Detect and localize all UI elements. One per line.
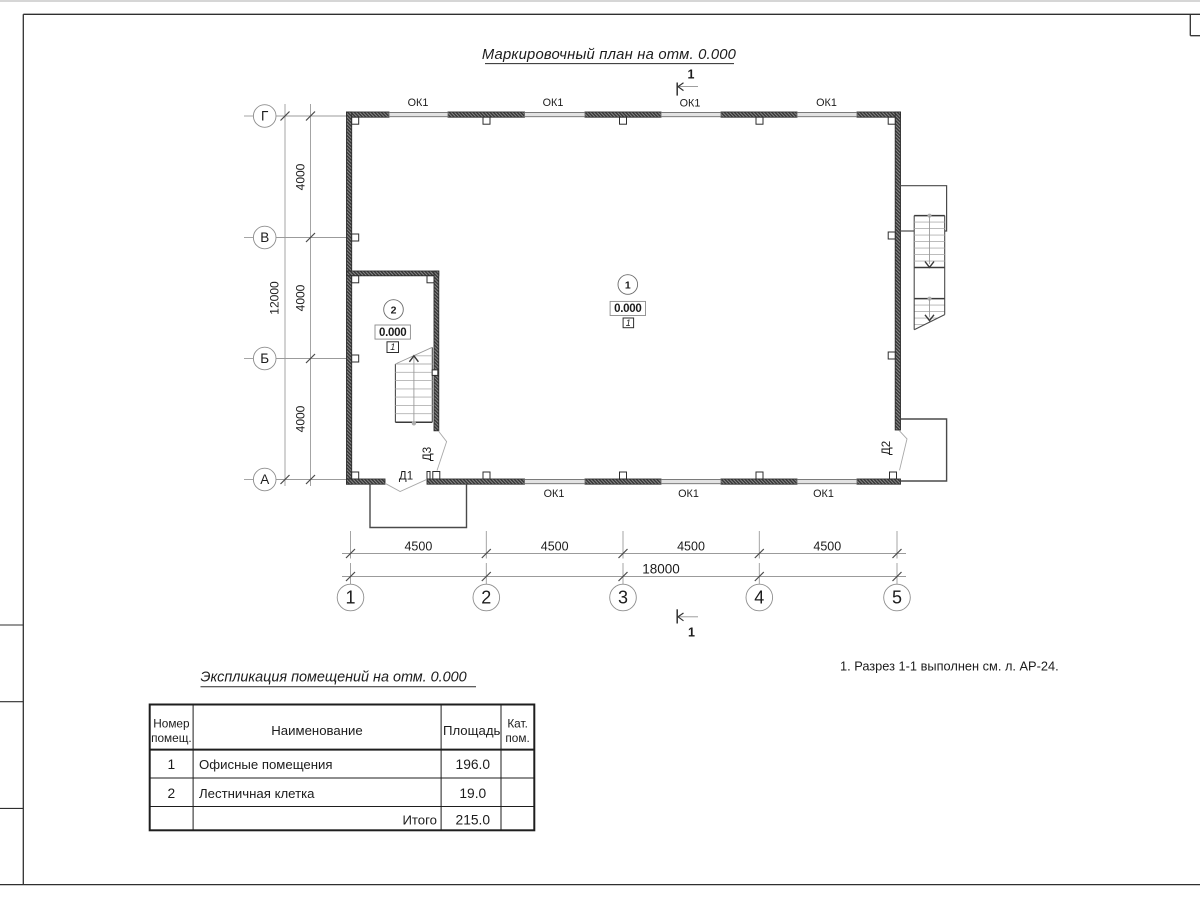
svg-text:4500: 4500 [813, 540, 841, 554]
svg-text:5: 5 [892, 588, 902, 608]
svg-text:0.000: 0.000 [379, 327, 406, 339]
svg-text:пом.: пом. [505, 731, 529, 745]
svg-text:4000: 4000 [294, 405, 308, 432]
svg-text:1: 1 [688, 626, 695, 640]
svg-text:ОК1: ОК1 [408, 97, 429, 109]
svg-text:1: 1 [168, 757, 176, 772]
svg-text:А: А [260, 472, 269, 487]
svg-text:4: 4 [754, 588, 764, 608]
svg-text:215.0: 215.0 [456, 813, 491, 828]
svg-text:Б: Б [260, 351, 269, 366]
svg-text:Номер: Номер [153, 717, 190, 731]
svg-text:4500: 4500 [541, 540, 569, 554]
svg-text:Площадь: Площадь [443, 723, 501, 738]
svg-text:4000: 4000 [294, 284, 308, 311]
svg-text:Маркировочный план на отм. 0.0: Маркировочный план на отм. 0.000 [482, 47, 737, 63]
svg-text:1: 1 [626, 318, 631, 328]
svg-text:4000: 4000 [294, 163, 308, 190]
svg-text:Экспликация помещений на отм.: Экспликация помещений на отм. 0.000 [201, 670, 467, 686]
svg-text:Д2: Д2 [881, 441, 893, 455]
svg-text:Итого: Итого [402, 813, 437, 828]
svg-text:Лестничная клетка: Лестничная клетка [199, 786, 315, 801]
svg-text:0.000: 0.000 [614, 303, 641, 315]
svg-text:Д1: Д1 [399, 471, 413, 483]
svg-text:Кат.: Кат. [507, 717, 528, 731]
svg-text:ОК1: ОК1 [816, 97, 837, 109]
svg-text:Офисные помещения: Офисные помещения [199, 757, 333, 772]
svg-text:1: 1 [625, 279, 631, 291]
svg-text:Д3: Д3 [422, 447, 434, 461]
svg-text:1: 1 [688, 68, 695, 82]
svg-text:4500: 4500 [677, 540, 705, 554]
svg-text:ОК1: ОК1 [813, 488, 834, 500]
svg-text:18000: 18000 [642, 562, 680, 577]
svg-text:4500: 4500 [404, 540, 432, 554]
svg-text:19.0: 19.0 [459, 786, 486, 801]
svg-text:ОК1: ОК1 [543, 97, 564, 109]
svg-text:196.0: 196.0 [456, 757, 491, 772]
svg-text:ОК1: ОК1 [680, 98, 701, 110]
svg-text:2: 2 [391, 304, 397, 316]
svg-text:1: 1 [345, 588, 355, 608]
svg-text:В: В [260, 230, 269, 245]
svg-text:3: 3 [618, 588, 628, 608]
svg-text:Г: Г [261, 109, 269, 124]
svg-text:помещ.: помещ. [151, 731, 192, 745]
svg-text:2: 2 [481, 588, 491, 608]
svg-text:Наименование: Наименование [271, 723, 362, 738]
svg-text:ОК1: ОК1 [678, 488, 699, 500]
svg-text:12000: 12000 [268, 281, 282, 315]
svg-text:1. Разрез 1-1 выполнен см. л.: 1. Разрез 1-1 выполнен см. л. АР-24. [840, 659, 1059, 674]
svg-text:1: 1 [390, 342, 395, 352]
svg-text:2: 2 [168, 786, 176, 801]
svg-text:ОК1: ОК1 [544, 488, 565, 500]
